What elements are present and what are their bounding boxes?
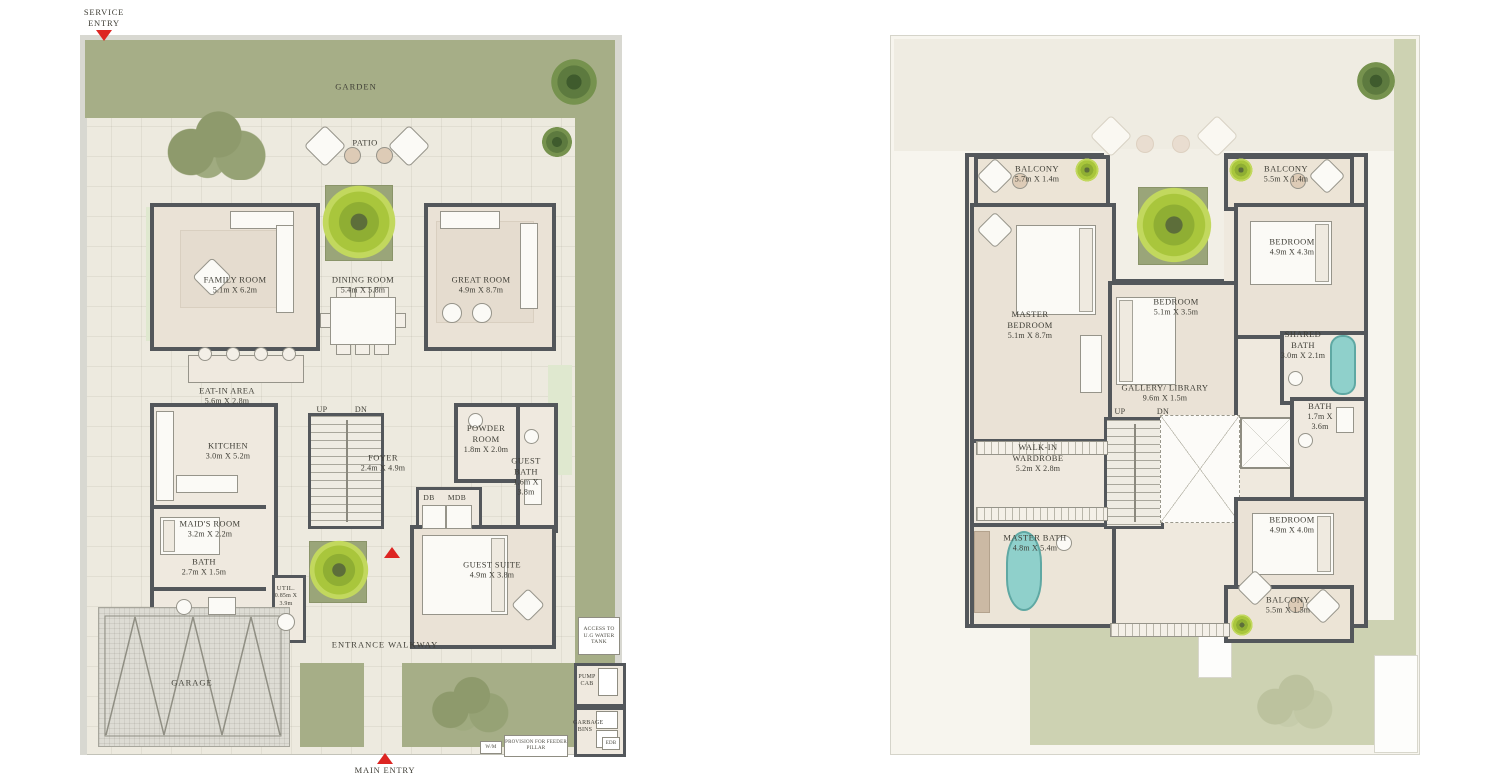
wm-label: W/M [485, 745, 496, 751]
family-room-rug [180, 230, 278, 308]
feeder-pillar-box: PROVISION FOR FEEDER PILLAR [504, 735, 568, 757]
eat-in-area-label: EAT-IN AREA 5.6m X 2.8m [199, 385, 255, 406]
vanity-counter [974, 531, 990, 613]
stool [198, 347, 212, 361]
room-dims: 4.8m X 5.4m [1003, 543, 1066, 553]
toilet [524, 429, 539, 444]
garden-top [85, 40, 615, 118]
room-name: GALLERY/ LIBRARY [1122, 382, 1209, 393]
room-name: SHARED BATH [1277, 329, 1329, 351]
stair-rail [346, 420, 348, 521]
room-name: MAID'S ROOM [180, 518, 241, 529]
bath-label: BATH 1.7m X 3.6m [1303, 401, 1337, 433]
room-name: BALCONY [1266, 594, 1310, 605]
room-dims: 4.9m X 3.8m [463, 570, 521, 580]
walk-in-wardrobe-label: WALK-IN WARDROBE 5.2m X 2.8m [1003, 442, 1073, 474]
balcony-bottom-label: BALCONY 5.5m X 1.5m [1266, 594, 1310, 615]
room-dims: 5.1m X 3.5m [1153, 307, 1198, 317]
bush-faint-icon [1250, 673, 1334, 729]
pump-unit [598, 668, 618, 696]
room-dims: 5.1m X 6.2m [204, 285, 267, 295]
main-entry-marker [377, 753, 393, 764]
room-name: BALCONY [1015, 163, 1059, 174]
guest-suite-label: GUEST SUITE 4.9m X 3.8m [463, 559, 521, 580]
kitchen-label: KITCHEN 3.0m X 5.2m [206, 440, 250, 461]
gallery-shelving [1110, 623, 1230, 637]
staircase [1104, 417, 1164, 529]
room-name: KITCHEN [206, 440, 250, 451]
water-tank-access-label: ACCESS TO U.G WATER TANK [579, 626, 619, 646]
sink [1336, 407, 1354, 433]
dining-chair [374, 344, 389, 355]
bush-cluster-icon [158, 110, 268, 180]
room-dims: 9.6m X 1.5m [1122, 393, 1209, 403]
wm-box: W/M [480, 741, 502, 754]
room-dims: 5.2m X 2.8m [1003, 464, 1073, 474]
toilet [1288, 371, 1303, 386]
patio-label: PATIO [352, 137, 377, 148]
double-height-void [1160, 415, 1240, 523]
room-name: BALCONY [1264, 163, 1308, 174]
sofa [520, 223, 538, 309]
patio-side-table [344, 147, 361, 164]
master-bed [1016, 225, 1096, 315]
room-name: WALK-IN WARDROBE [1003, 442, 1073, 464]
bedroom-bottom-label: BEDROOM 4.9m X 4.0m [1269, 514, 1314, 535]
room-name: MASTER BEDROOM [995, 309, 1065, 331]
bathtub [1330, 335, 1356, 395]
lot-wall-right [615, 35, 622, 705]
room-dims: 1.7m X 3.6m [1303, 412, 1337, 433]
dining-chair [320, 313, 331, 328]
dining-chair [355, 344, 370, 355]
stairs-dn-label: DN [355, 405, 367, 415]
dining-table [330, 297, 396, 345]
bottom-cutout [1374, 655, 1418, 753]
feeder-pillar-label: PROVISION FOR FEEDER PILLAR [505, 740, 567, 752]
room-dims: 3.2m X 2.2m [180, 529, 241, 539]
sink [208, 597, 236, 615]
room-dims: 5.1m X 8.7m [995, 331, 1065, 341]
garbage-label: GARBAGE BINS [573, 720, 597, 734]
ground-floor-plan: GARDEN PATIO [80, 35, 622, 755]
foyer-label: FOYER 2.4m X 4.9m [361, 452, 405, 473]
tree-icon [1132, 183, 1216, 267]
garage-label: GARAGE [171, 677, 212, 688]
first-floor-plan: UP DN BALCONY 5.7m X 1.4m BALCONY 5.5m X… [890, 35, 1420, 755]
main-entry-label: MAIN ENTRY [355, 765, 416, 776]
bath-label: BATH 2.7m X 1.5m [182, 556, 226, 577]
room-name: BEDROOM [1153, 296, 1198, 307]
tree-icon [318, 181, 400, 263]
room-name: EAT-IN AREA [199, 385, 255, 396]
gallery-library-label: GALLERY/ LIBRARY 9.6m X 1.5m [1122, 382, 1209, 403]
room-dims: 2.7m X 1.5m [182, 567, 226, 577]
lot-wall-left [80, 35, 87, 755]
room-name: BATH [1303, 401, 1337, 412]
balcony-plant-icon [1074, 157, 1100, 183]
room-dims: 1.6m X 3.8m [506, 478, 546, 499]
stool [282, 347, 296, 361]
great-room-label: GREAT ROOM 4.9m X 8.7m [452, 274, 511, 295]
sofa [276, 225, 294, 313]
guest-bath-label: GUEST BATH 1.6m X 3.8m [506, 456, 546, 499]
dining-chair [395, 313, 406, 328]
room-name: DINING ROOM [332, 274, 394, 285]
room-name: BEDROOM [1269, 236, 1314, 247]
powder-room-label: POWDER ROOM 1.8m X 2.0m [462, 423, 510, 455]
toilet [176, 599, 192, 615]
stairs-up-label: UP [1114, 407, 1125, 417]
room-dims: 4.9m X 4.0m [1269, 525, 1314, 535]
master-bedroom-label: MASTER BEDROOM 5.1m X 8.7m [995, 309, 1065, 341]
bush-cluster-bottom-icon [425, 675, 510, 733]
pump-cab-label: PUMP CAB [575, 674, 599, 688]
family-room-label: FAMILY ROOM 5.1m X 6.2m [204, 274, 267, 295]
room-name: FAMILY ROOM [204, 274, 267, 285]
room-name: POWDER ROOM [462, 423, 510, 445]
bedroom-right-label: BEDROOM 4.9m X 4.3m [1269, 236, 1314, 257]
room-name: MASTER BATH [1003, 532, 1066, 543]
edb-box: EDB [602, 737, 620, 750]
maids-room-label: MAID'S ROOM 3.2m X 2.2m [180, 518, 241, 539]
dining-chair [336, 344, 351, 355]
room-name: BATH [182, 556, 226, 567]
garage-marking-icon [104, 615, 282, 737]
service-entry-marker [96, 30, 112, 41]
chaise [1080, 335, 1102, 393]
ghost-side-table [1172, 135, 1190, 153]
armchair [442, 303, 462, 323]
db-panel [422, 505, 446, 529]
room-dims: 2.4m X 4.9m [361, 463, 405, 473]
util-label: UTIL. 0.85m X 3.9m [271, 585, 301, 609]
room-dims: 5.6m X 2.8m [199, 396, 255, 406]
room-name: BEDROOM [1269, 514, 1314, 525]
garden-right-strip [575, 40, 615, 705]
balcony-plant-icon [1228, 157, 1254, 183]
room-dims: 5.5m X 1.4m [1264, 174, 1308, 184]
fern-icon [1352, 57, 1400, 105]
void-shaft [1240, 417, 1292, 469]
room-dims: 5.4m X 5.8m [332, 285, 394, 295]
wardrobe-shelving [976, 507, 1108, 521]
kitchen-counter [156, 411, 174, 501]
room-dims: 1.8m X 2.0m [462, 445, 510, 455]
bedroom-mid-label: BEDROOM 5.1m X 3.5m [1153, 296, 1198, 317]
tree-icon [306, 537, 372, 603]
room-dims: 4.9m X 8.7m [452, 285, 511, 295]
room-dims: 5.7m X 1.4m [1015, 174, 1059, 184]
sofa [440, 211, 500, 229]
wall [154, 505, 266, 509]
balcony-left-label: BALCONY 5.7m X 1.4m [1015, 163, 1059, 184]
service-entry-label: SERVICE ENTRY [74, 7, 134, 30]
mdb-panel [446, 505, 472, 529]
floor-plans-canvas: GARDEN PATIO [0, 0, 1500, 783]
washer [277, 613, 295, 631]
ghost-side-table [1136, 135, 1154, 153]
balcony-plant-icon [1230, 613, 1254, 637]
room-dims: 3.0m X 5.2m [206, 451, 250, 461]
fern-small-icon [538, 123, 576, 161]
room-dims: 5.5m X 1.5m [1266, 605, 1310, 615]
edb-label: EDB [606, 741, 617, 747]
room-name: GUEST BATH [506, 456, 546, 478]
shared-bath-label: SHARED BATH 3.0m X 2.1m [1277, 329, 1329, 361]
stairs-up-label: UP [316, 405, 327, 415]
fern-icon [545, 53, 603, 111]
mdb-label: MDB [448, 493, 466, 503]
stairs-dn-label: DN [1157, 407, 1169, 417]
stair-rail [1134, 424, 1136, 522]
dining-room-label: DINING ROOM 5.4m X 5.8m [332, 274, 394, 295]
room-dims: 0.85m X 3.9m [271, 593, 301, 609]
db-label: DB [423, 493, 434, 503]
garden-label: GARDEN [335, 81, 376, 92]
stool [226, 347, 240, 361]
room-name: GUEST SUITE [463, 559, 521, 570]
foyer-entry-marker [384, 547, 400, 558]
room-dims: 4.9m X 4.3m [1269, 247, 1314, 257]
coffee-table [472, 303, 492, 323]
room-name: UTIL. [271, 585, 301, 593]
master-bath-label: MASTER BATH 4.8m X 5.4m [1003, 532, 1066, 553]
upper-terrace-band [894, 39, 1416, 151]
kitchen-counter [176, 475, 238, 493]
room-dims: 3.0m X 2.1m [1277, 351, 1329, 361]
water-tank-access-box: ACCESS TO U.G WATER TANK [578, 617, 620, 655]
stool [254, 347, 268, 361]
wall [154, 587, 266, 591]
balcony-right-label: BALCONY 5.5m X 1.4m [1264, 163, 1308, 184]
room-name: GREAT ROOM [452, 274, 511, 285]
toilet [1298, 433, 1313, 448]
walkway-label: ENTRANCE WALKWAY [332, 639, 438, 650]
room-name: FOYER [361, 452, 405, 463]
garden-patch-left [300, 663, 364, 747]
